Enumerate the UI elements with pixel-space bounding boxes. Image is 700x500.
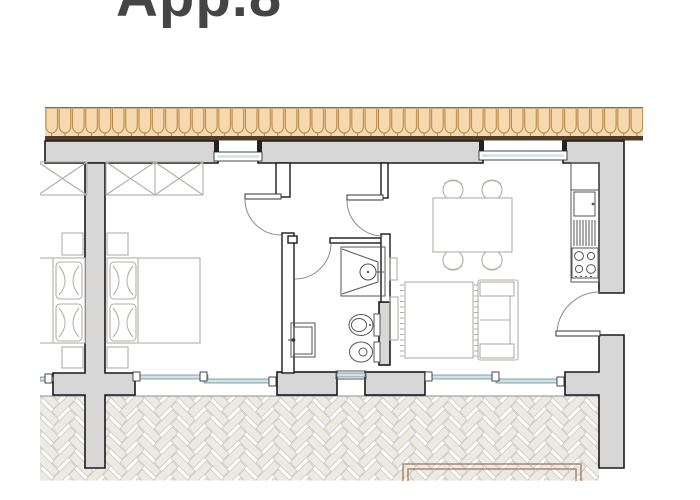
- nightstand: [62, 233, 83, 255]
- bedroom-door-arc: [245, 199, 281, 235]
- toilet: [349, 314, 380, 336]
- wall-pier-bath-left: [277, 372, 337, 395]
- kitchen-window: [479, 141, 567, 160]
- wall-top-left: [45, 141, 218, 163]
- bidet: [350, 342, 381, 362]
- tv-bench: [390, 258, 398, 340]
- screenshot-root: App.8: [0, 0, 700, 500]
- wall-bath-east-lower: [379, 302, 390, 365]
- hallway-door-leaf: [347, 195, 383, 200]
- bedroom-door: [245, 194, 281, 235]
- entrance-door-leaf: [556, 331, 600, 336]
- bathroom-fixtures: [288, 247, 385, 362]
- sofa: [478, 280, 518, 360]
- floor-plan: [0, 0, 700, 500]
- entrance-door-arc: [557, 292, 600, 331]
- wardrobe: [106, 162, 203, 195]
- rug: [400, 282, 478, 358]
- bedroom-door-leaf: [245, 194, 281, 199]
- roof-band: [45, 107, 643, 141]
- wall-pier-bath-right: [365, 372, 425, 395]
- partition-bathroom-west: [282, 233, 294, 373]
- dish-drainer: [574, 220, 595, 246]
- living-sliding-window: [425, 372, 564, 386]
- roof-tiles: [45, 107, 643, 140]
- bedroom-sliding-window: [133, 372, 276, 386]
- neighbor-window-stub: [40, 374, 53, 383]
- bedroom-furniture: [106, 162, 203, 368]
- partition-hall-east-upper: [381, 163, 388, 198]
- nightstand: [107, 347, 128, 368]
- cooktop: [572, 248, 598, 278]
- partition-bathroom-north: [330, 238, 382, 243]
- kitchen-living-furniture: [390, 163, 599, 360]
- bedroom-window: [214, 141, 262, 161]
- door-jamb-bathroom: [288, 236, 297, 243]
- bottom-crop-mask: [0, 481, 700, 500]
- entrance-door: [556, 292, 600, 336]
- kitchen-counter: [571, 163, 599, 282]
- neighbor-unit-furniture: [36, 162, 87, 368]
- bathroom-door: [295, 243, 331, 279]
- bathroom-door-arc: [295, 243, 331, 279]
- double-bed: [36, 258, 85, 343]
- kitchen-sink: [574, 192, 595, 216]
- shower: [341, 247, 385, 296]
- double-bed: [107, 258, 200, 343]
- hallway-door-arc: [347, 200, 383, 236]
- nightstand: [107, 233, 128, 255]
- dining-table: [433, 180, 512, 270]
- wall-top-middle: [258, 141, 483, 163]
- bathroom-window: [336, 371, 366, 379]
- doors: [245, 194, 600, 336]
- nightstand: [62, 347, 83, 368]
- left-crop-mask: [0, 0, 40, 500]
- roof-eave-edge: [45, 136, 643, 141]
- partition-bedroom-east: [276, 163, 290, 197]
- hallway-door: [347, 195, 383, 236]
